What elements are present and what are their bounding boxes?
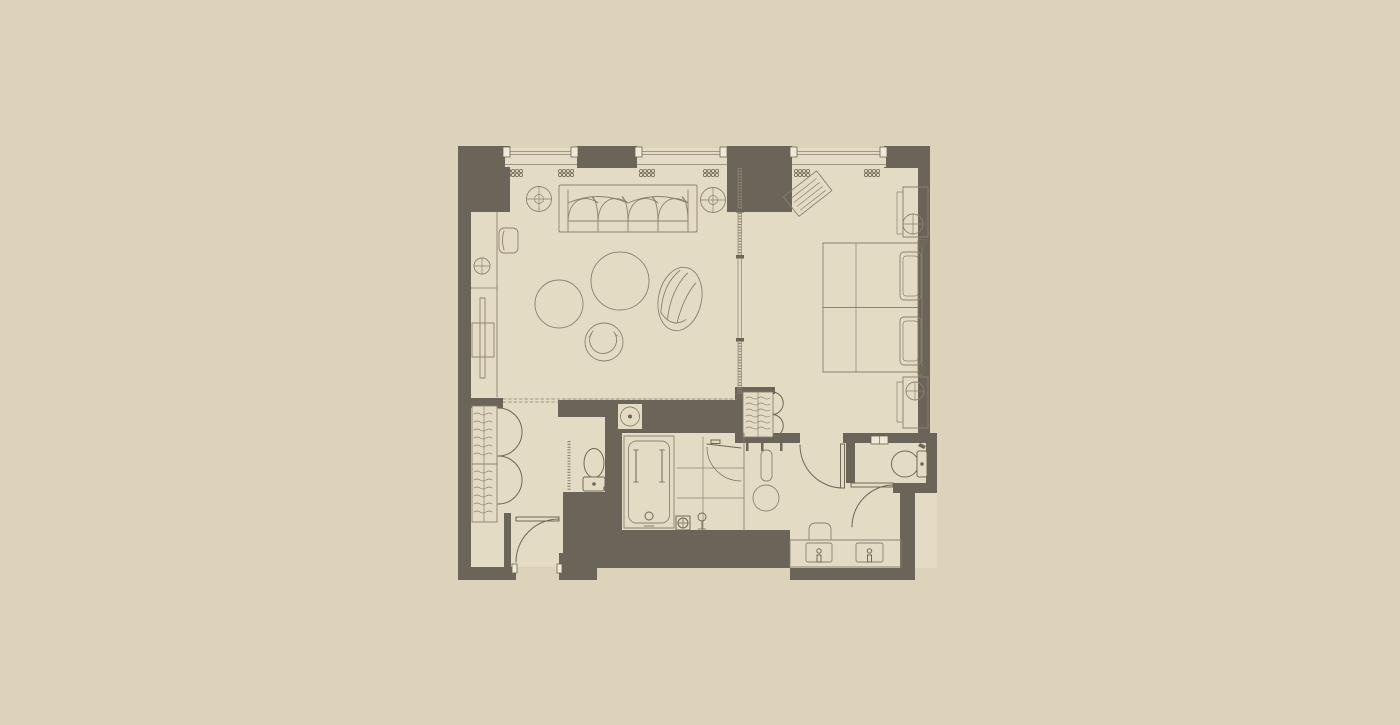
window-jamb	[571, 147, 578, 157]
wall-bath-bottom-a	[563, 530, 790, 555]
window-2	[635, 147, 727, 167]
wall-vanity-right	[900, 493, 915, 580]
wall-wc-left-top	[558, 400, 615, 417]
wall-partition-column	[727, 146, 792, 212]
floorplan-svg	[0, 0, 1400, 725]
wall-top-left-block	[458, 146, 510, 212]
window-jamb	[503, 147, 510, 157]
wall-bath-bottom-b	[559, 553, 790, 568]
floor-lamp-crosshair	[527, 187, 552, 212]
floors	[471, 160, 937, 568]
door-jamb	[512, 564, 517, 573]
wall-wc-right-left	[846, 443, 855, 483]
window-1	[503, 147, 578, 167]
door-leaf	[851, 483, 893, 487]
door-frame-tick	[746, 443, 749, 451]
wall-sconce	[919, 240, 926, 247]
window-jamb	[720, 147, 727, 157]
door-handle	[711, 440, 720, 444]
wall-vanity-bottom	[790, 568, 915, 580]
door-jamb	[557, 564, 562, 573]
wall-sconce	[919, 367, 926, 374]
floor-lamp-crosshair	[701, 188, 726, 213]
wall-wc-left-bottom-mass	[563, 492, 622, 530]
windows	[503, 147, 887, 167]
door-frame-tick	[761, 443, 764, 451]
window-jamb	[790, 147, 797, 157]
window-jamb	[880, 147, 887, 157]
wall-bedroom-bottom-b	[843, 433, 937, 443]
wall-left	[458, 212, 471, 568]
bathtub-room-floor	[617, 433, 677, 530]
wall-bath-bottom-step	[559, 568, 597, 580]
window-jamb	[635, 147, 642, 157]
wall-niche-lamp	[618, 404, 642, 429]
door-leaf	[841, 444, 845, 488]
door-frame-tick	[780, 443, 783, 451]
wall-wc-right-bottom	[893, 483, 937, 493]
wall-mullion-1	[577, 146, 637, 168]
wall-entry-stub	[504, 513, 511, 569]
floorplan-image	[0, 0, 1400, 725]
living-room-floor	[471, 160, 738, 398]
window-3	[790, 147, 887, 167]
